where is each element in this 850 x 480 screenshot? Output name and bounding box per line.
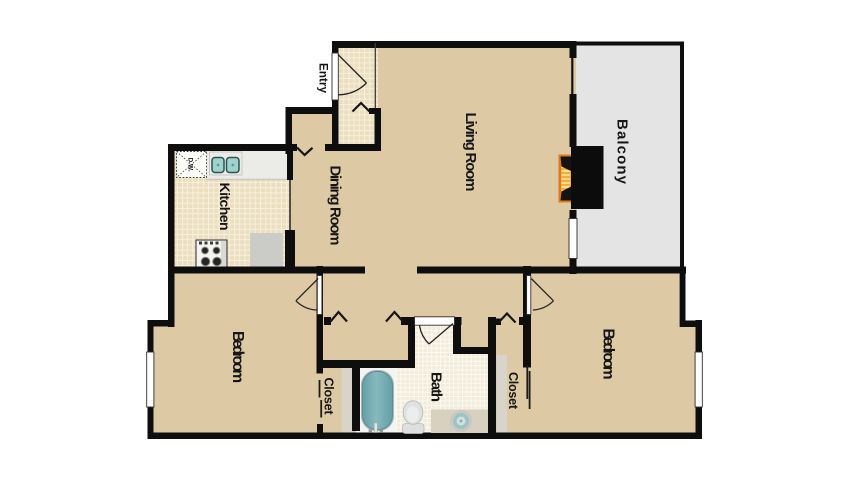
svg-text:Bath: Bath bbox=[427, 372, 444, 402]
svg-text:Closet: Closet bbox=[506, 372, 520, 410]
svg-text:Closet: Closet bbox=[322, 378, 336, 416]
svg-text:Bedroom: Bedroom bbox=[600, 329, 617, 380]
svg-text:Dining Room: Dining Room bbox=[326, 166, 343, 246]
svg-text:Balcony: Balcony bbox=[613, 119, 630, 185]
svg-text:Entry: Entry bbox=[316, 63, 328, 94]
svg-text:Kitchen: Kitchen bbox=[217, 183, 233, 231]
svg-text:D.W.: D.W. bbox=[187, 158, 194, 172]
svg-text:Living Room: Living Room bbox=[462, 113, 479, 192]
svg-text:Bedroom: Bedroom bbox=[229, 331, 246, 383]
